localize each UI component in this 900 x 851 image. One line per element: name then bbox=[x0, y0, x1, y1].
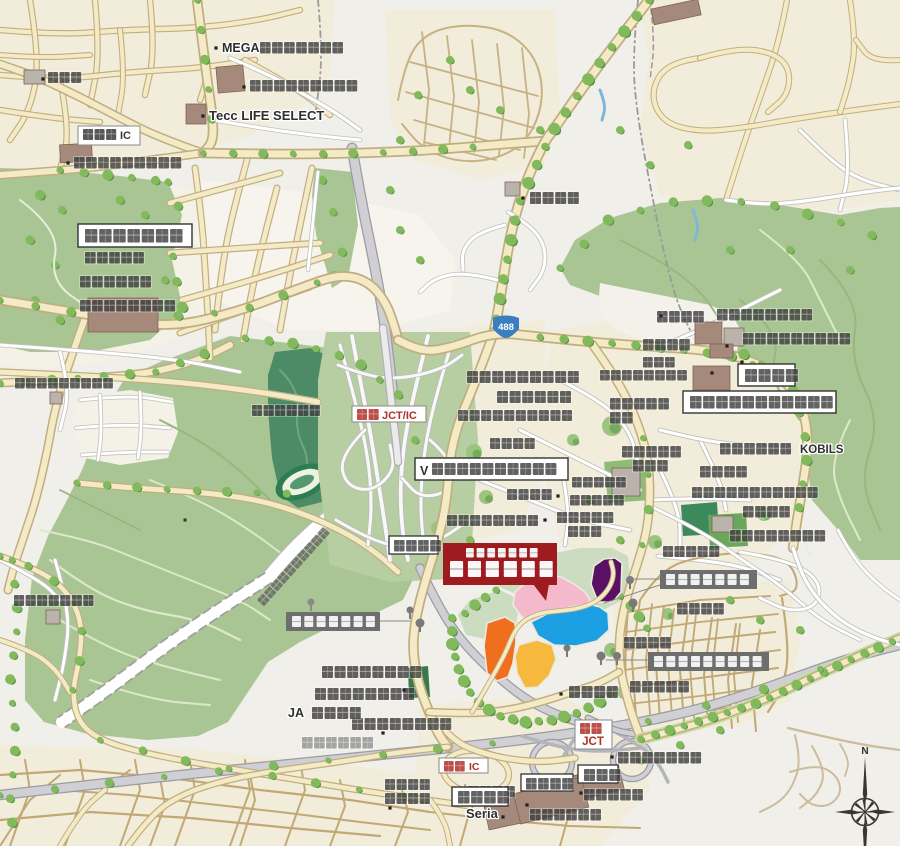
svg-text:JCT/IC: JCT/IC bbox=[382, 410, 417, 422]
svg-text:KOBILS: KOBILS bbox=[800, 444, 844, 456]
svg-text:JA: JA bbox=[288, 706, 304, 720]
svg-text:Seria: Seria bbox=[466, 806, 499, 821]
svg-text:488: 488 bbox=[498, 322, 514, 333]
svg-text:JCT: JCT bbox=[582, 736, 604, 748]
svg-text:MEGA: MEGA bbox=[222, 41, 260, 55]
svg-text:IC: IC bbox=[469, 761, 480, 773]
svg-text:V: V bbox=[420, 464, 429, 478]
svg-text:IC: IC bbox=[120, 130, 131, 142]
svg-text:Tecc LIFE SELECT: Tecc LIFE SELECT bbox=[209, 108, 324, 123]
svg-text:N: N bbox=[861, 746, 868, 757]
